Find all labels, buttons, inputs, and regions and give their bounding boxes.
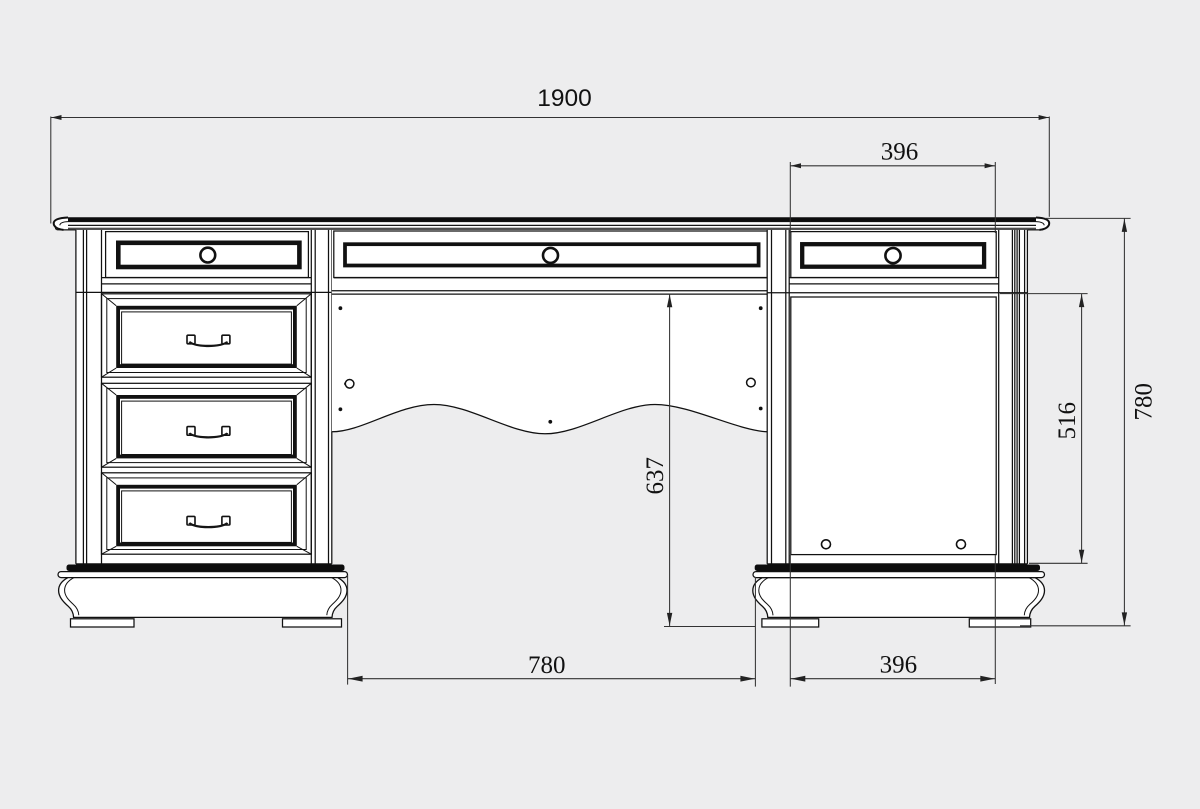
svg-text:637: 637 (642, 457, 669, 495)
svg-text:516: 516 (1054, 402, 1081, 440)
svg-text:396: 396 (880, 652, 918, 679)
svg-text:396: 396 (881, 139, 919, 166)
svg-text:780: 780 (528, 652, 566, 679)
svg-text:780: 780 (1131, 383, 1158, 421)
svg-text:1900: 1900 (537, 85, 592, 112)
